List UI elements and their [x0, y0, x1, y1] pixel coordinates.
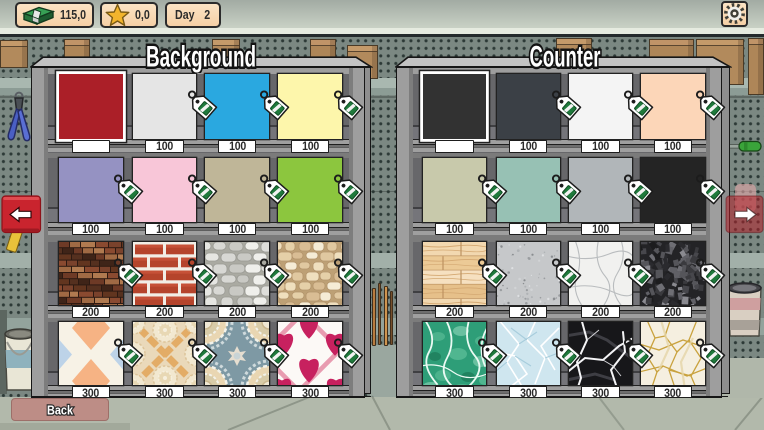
- svg-text:Background: Background: [146, 41, 256, 74]
- svg-text:Counter: Counter: [529, 41, 600, 74]
- svg-text:Back: Back: [47, 402, 74, 417]
